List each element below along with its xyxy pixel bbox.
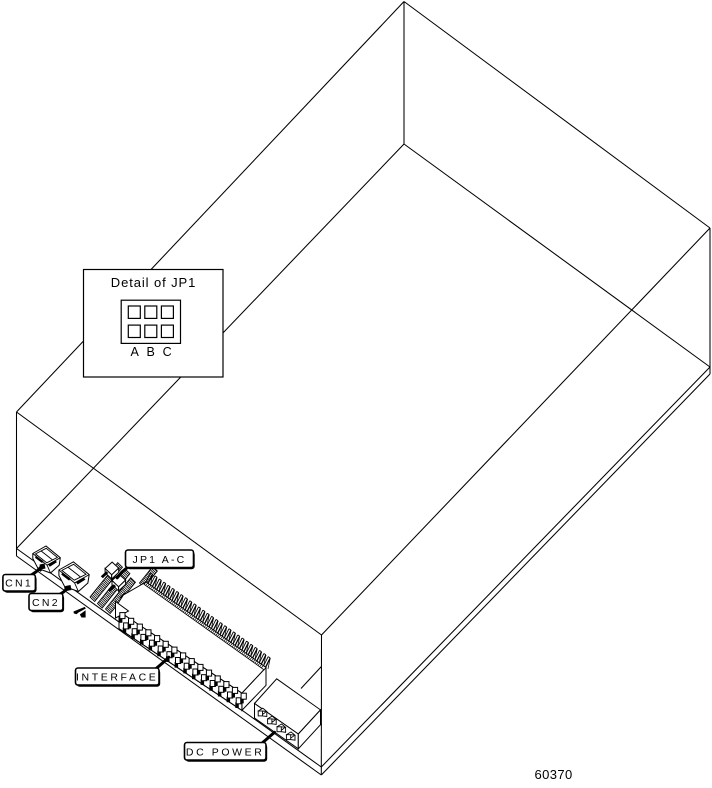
svg-text:CN1: CN1 [5,578,33,590]
svg-text:60370: 60370 [535,767,573,782]
svg-text:DC POWER: DC POWER [186,747,265,759]
svg-text:INTERFACE: INTERFACE [76,672,158,684]
svg-text:B: B [147,345,155,359]
svg-text:JP1 A-C: JP1 A-C [133,554,187,566]
svg-text:A: A [131,345,140,359]
svg-text:CN2: CN2 [32,597,60,609]
svg-text:C: C [163,345,172,359]
svg-text:Detail of JP1: Detail of JP1 [111,275,196,290]
